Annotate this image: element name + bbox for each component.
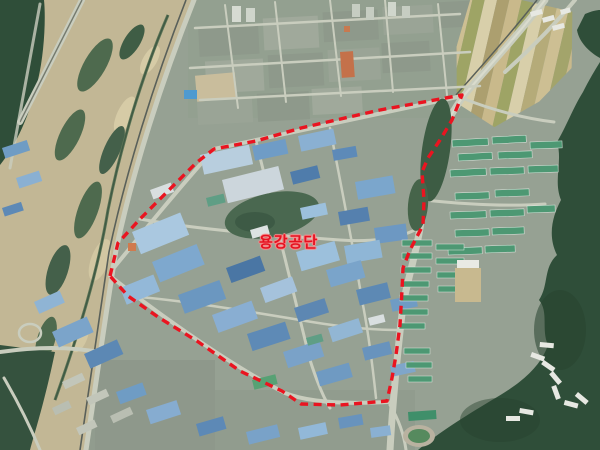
industrial-complex-label: 용강공단	[259, 235, 329, 250]
satellite-map-view[interactable]: 용강공단	[0, 0, 600, 450]
